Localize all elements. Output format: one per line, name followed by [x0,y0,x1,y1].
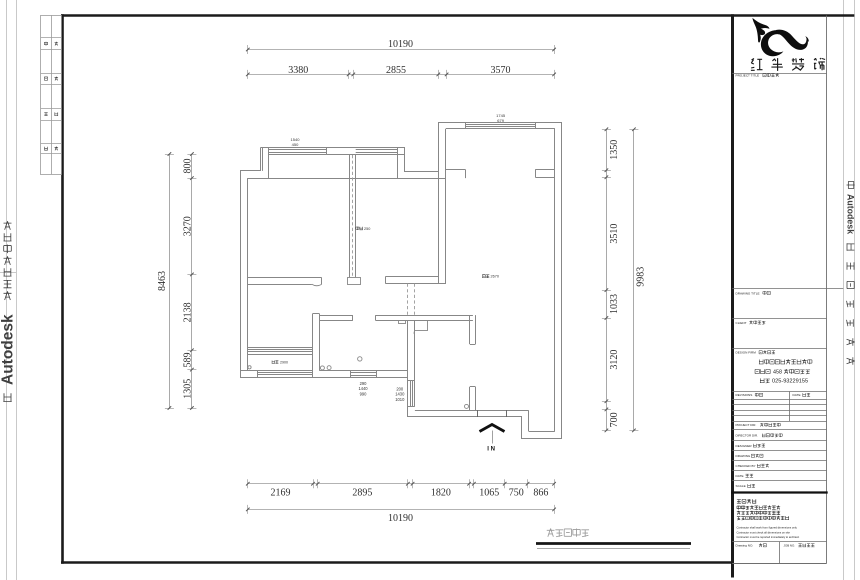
svg-text:PROJECT TITLE: PROJECT TITLE [736,74,760,78]
svg-text:DESIGNER: DESIGNER [736,444,753,448]
svg-text:JOB NO.: JOB NO. [784,544,796,548]
svg-text:DATE: DATE [736,474,744,478]
svg-text:10190: 10190 [388,39,413,50]
svg-text:700: 700 [609,412,620,427]
svg-text:Contractor must check all dime: Contractor must check all dimensions on … [737,530,791,534]
svg-text:CHECKED BY: CHECKED BY [736,464,756,468]
svg-text:800: 800 [183,159,194,174]
svg-text:2900: 2900 [280,360,288,364]
svg-text:750: 750 [509,488,524,499]
svg-text:1430: 1430 [395,392,405,397]
svg-text:250: 250 [364,227,370,231]
svg-text:CLIENT: CLIENT [736,321,747,325]
svg-text:2670: 2670 [491,275,499,279]
svg-text:Contractor must be reported im: Contractor must be reported immediately … [737,535,800,539]
svg-text:866: 866 [533,488,548,499]
svg-text:REVISIONS: REVISIONS [736,393,753,397]
svg-text:Autodesk: Autodesk [0,314,16,385]
svg-text:025-93229155: 025-93229155 [772,379,808,385]
svg-text:10190: 10190 [388,513,413,524]
svg-text:1010: 1010 [395,397,405,402]
svg-text:290: 290 [360,381,368,386]
svg-text:DRAWING TITLE: DRAWING TITLE [736,291,760,295]
svg-text:1065: 1065 [479,488,499,499]
svg-text:1820: 1820 [431,488,451,499]
svg-text:Drawing NO.: Drawing NO. [736,544,754,548]
svg-text:3270: 3270 [183,216,194,236]
svg-text:1350: 1350 [609,140,620,160]
svg-text:458: 458 [773,369,782,375]
svg-text:3120: 3120 [609,350,620,370]
svg-text:589: 589 [183,353,194,368]
svg-text:679: 679 [497,118,504,123]
svg-text:2895: 2895 [352,488,372,499]
svg-text:DATE: DATE [793,393,801,397]
svg-text:2855: 2855 [386,65,406,76]
svg-text:DRAWING: DRAWING [736,454,751,458]
svg-text:2138: 2138 [183,302,194,322]
svg-text:Autodesk: Autodesk [845,194,855,234]
svg-text:SCALE: SCALE [736,484,746,488]
svg-text:Contractor shall work from fig: Contractor shall work from figured dimen… [737,525,798,529]
svg-text:3570: 3570 [491,65,511,76]
svg-text:990: 990 [360,391,368,396]
svg-text:8463: 8463 [157,271,168,291]
svg-text:450: 450 [292,142,299,147]
svg-text:200: 200 [396,386,404,391]
svg-text:1440: 1440 [358,386,368,391]
svg-text:PROJECT DIR.: PROJECT DIR. [736,423,757,427]
svg-text:IN: IN [487,447,497,453]
svg-text:DESIGN FIRM: DESIGN FIRM [736,351,757,355]
svg-text:1033: 1033 [609,294,620,314]
svg-text:3380: 3380 [288,65,308,76]
svg-text:3510: 3510 [609,224,620,244]
svg-text:1305: 1305 [183,379,194,399]
svg-text:DIRECTOR DIR.: DIRECTOR DIR. [736,434,759,438]
svg-text:9983: 9983 [635,267,646,287]
svg-text:2169: 2169 [271,488,291,499]
